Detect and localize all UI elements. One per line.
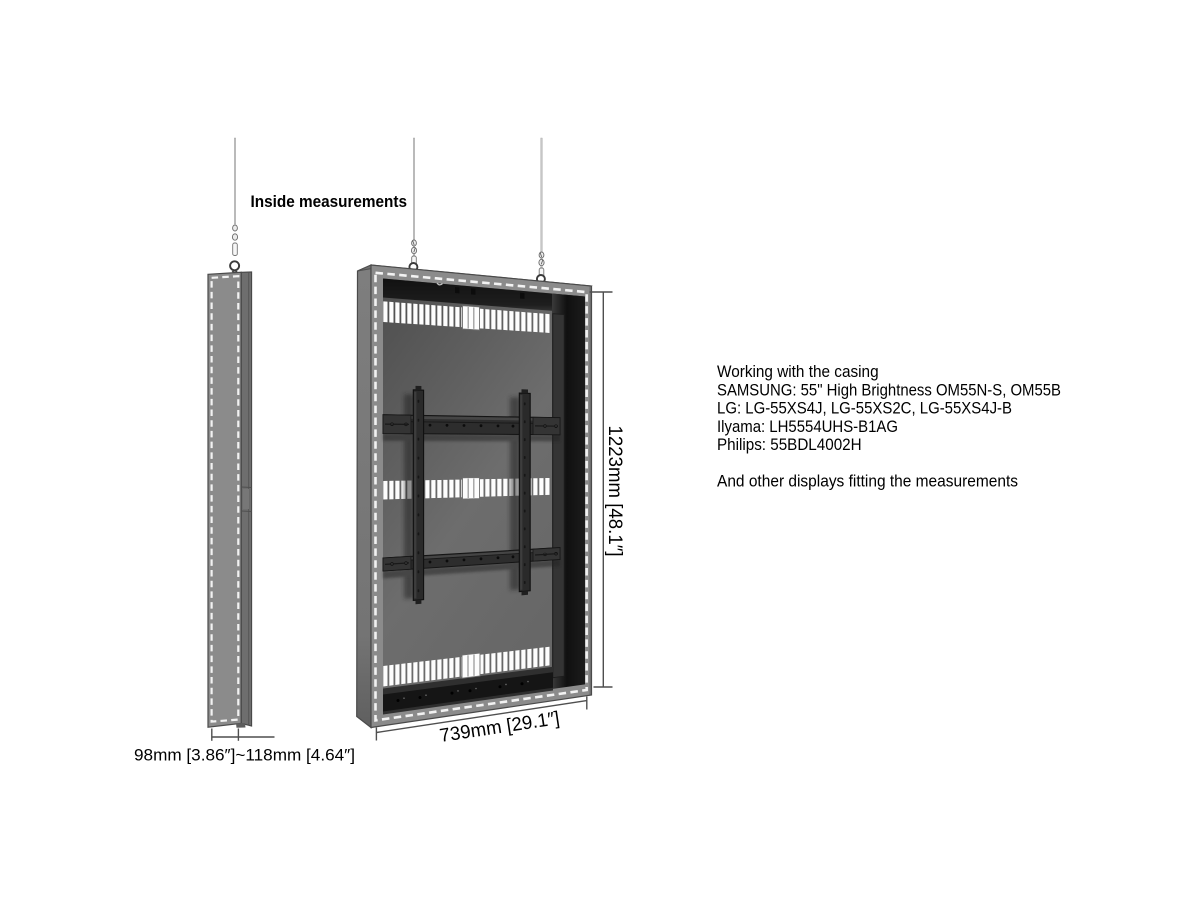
svg-text:And other displays fitting the: And other displays fitting the measureme… [717,472,1018,490]
svg-text:Ilyama: LH5554UHS-B1AG: Ilyama: LH5554UHS-B1AG [717,418,898,436]
svg-text:Working with the casing: Working with the casing [717,363,879,381]
svg-text:98mm [3.86″]~118mm [4.64″]: 98mm [3.86″]~118mm [4.64″] [134,747,355,765]
svg-text:Inside measurements: Inside measurements [251,193,408,211]
svg-text:LG: LG-55XS4J, LG-55XS2C, LG-5: LG: LG-55XS4J, LG-55XS2C, LG-55XS4J-B [717,400,1012,418]
svg-text:Philips: 55BDL4002H: Philips: 55BDL4002H [717,436,862,454]
svg-text:SAMSUNG: 55" High Brightness O: SAMSUNG: 55" High Brightness OM55N-S, OM… [717,381,1061,399]
svg-text:1223mm [48.1″]: 1223mm [48.1″] [604,426,625,557]
